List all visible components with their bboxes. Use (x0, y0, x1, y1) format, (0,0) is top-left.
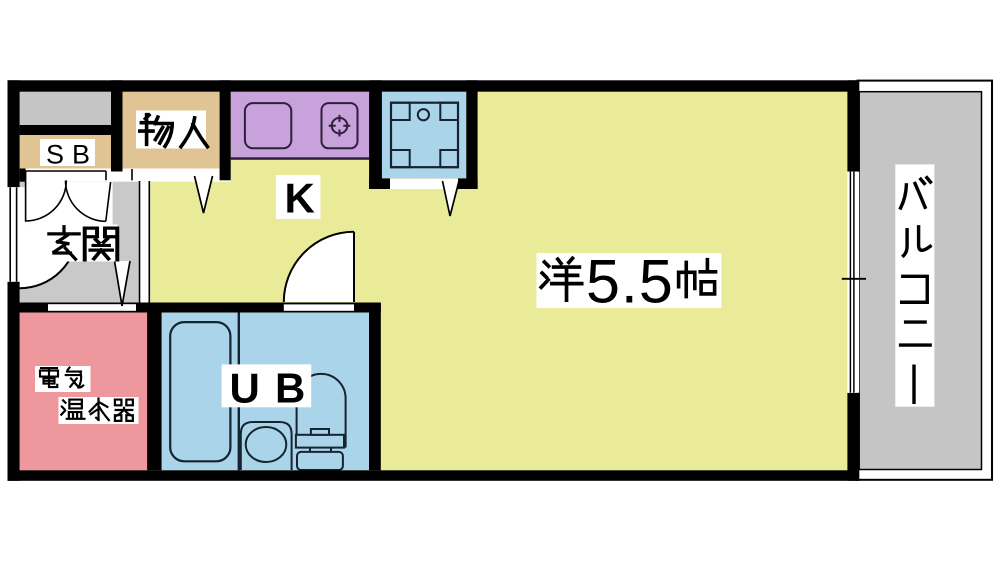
svg-text:5.5: 5.5 (586, 248, 674, 316)
svg-text:U: U (230, 365, 260, 412)
svg-text:B: B (275, 365, 305, 412)
svg-text:SB: SB (46, 140, 98, 170)
svg-text:K: K (285, 174, 315, 221)
